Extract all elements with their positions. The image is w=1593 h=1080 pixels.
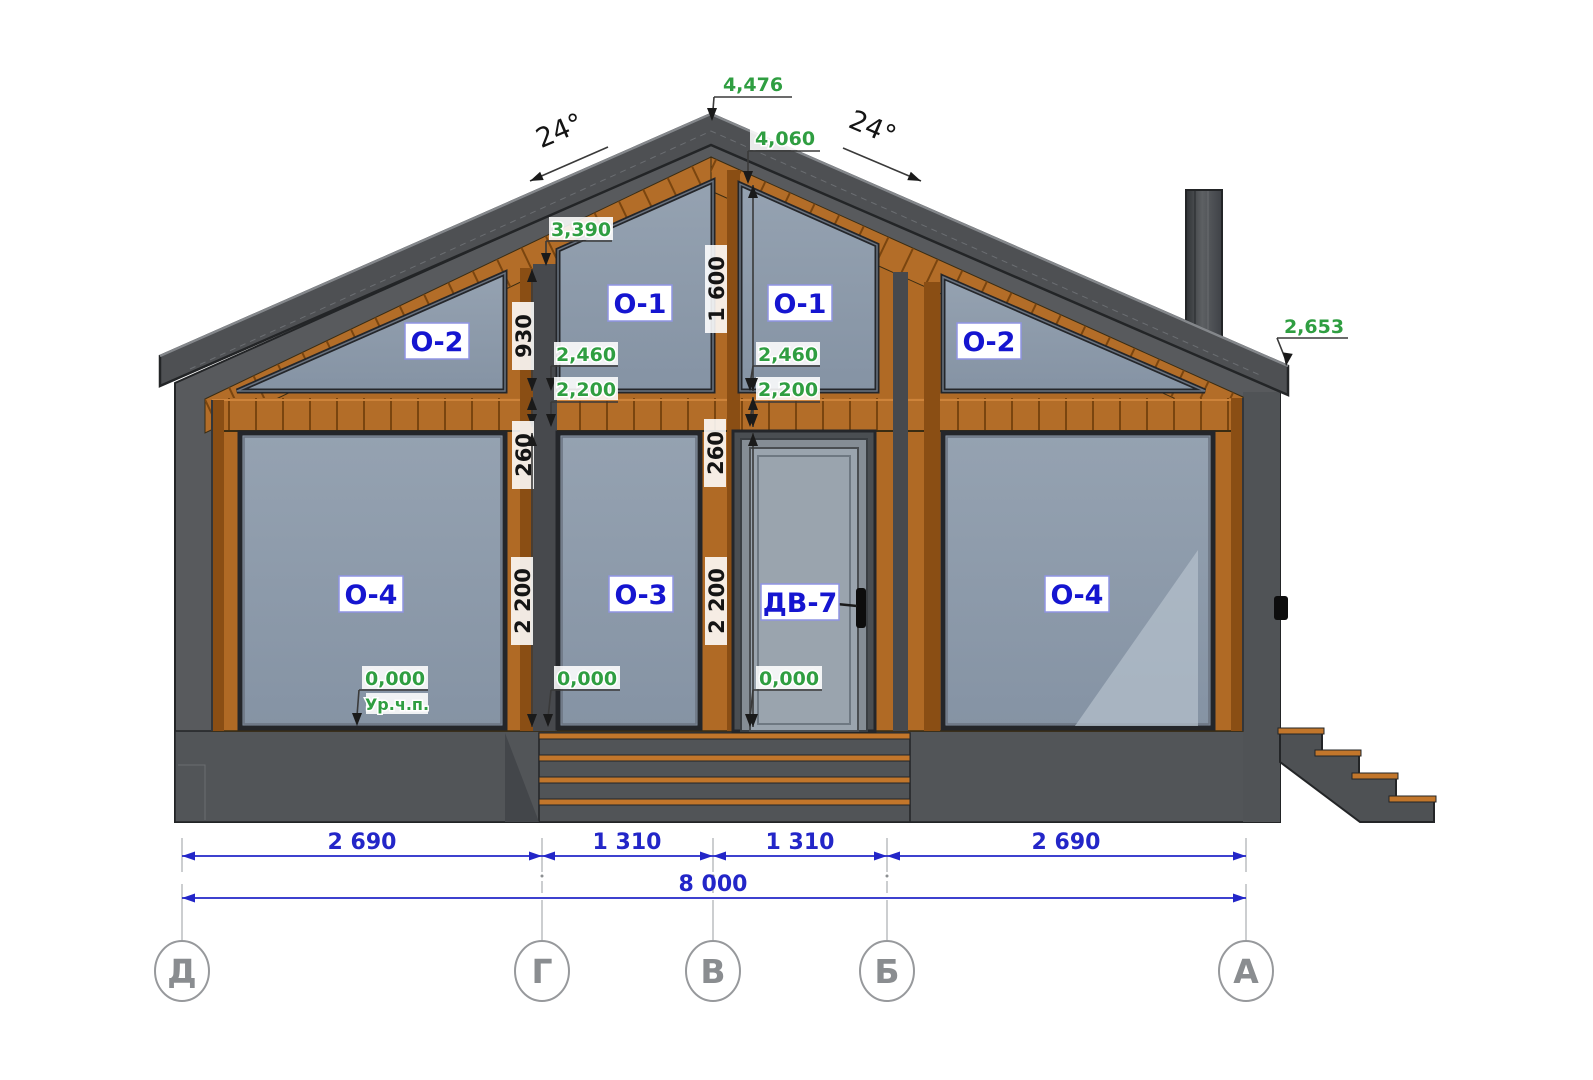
elevation-eave-right: 2,653 [1277,314,1348,367]
entry-steps [505,733,910,822]
floor-level-note: Ур.ч.п. [365,695,429,714]
label-o4-left: О-4 [339,576,403,612]
axis-a-letter: А [1233,952,1259,991]
elevation-left-2460-value: 2,460 [556,344,616,366]
vdim-1600: 1 600 [705,256,729,322]
elevation-right-2200-value: 2,200 [758,379,818,401]
label-o4-right-text: О-4 [1051,580,1104,611]
elevation-zero-cr-value: 0,000 [759,668,819,690]
wall-knob [1274,596,1288,620]
label-o2-right-text: О-2 [963,327,1016,358]
vdim-2200-left: 2 200 [511,568,535,634]
slope-right: 24° [843,105,923,186]
elevation-peak-value: 4,476 [723,74,783,96]
elevation-gable-top-value: 3,390 [551,219,611,241]
axis-bubbles: Д Г В Б А [155,941,1273,1001]
label-o3: О-3 [609,576,673,612]
hdim-total: 8 000 [679,872,748,897]
hdim-seg3: 1 310 [766,830,835,855]
axis-d-letter: Д [167,952,196,991]
hdim-seg1: 2 690 [328,830,397,855]
elevation-drawing: 24° 24° 4,476 4,060 3,390 [0,0,1593,1080]
axis-b-letter: Б [874,952,899,991]
label-o1-left-text: О-1 [614,289,667,320]
label-o3-text: О-3 [615,580,668,611]
label-o4-right: О-4 [1045,576,1109,612]
slope-left-label: 24° [532,108,588,155]
axis-v: В [686,941,740,1001]
horizontal-dimensions: 2 690 1 310 1 310 2 690 8 000 [182,830,1246,941]
axis-a: А [1219,941,1273,1001]
axis-g-letter: Г [531,952,552,991]
slope-right-label: 24° [844,105,900,152]
elevation-peak: 4,476 [707,71,792,121]
elevation-zero-left-value: 0,000 [365,668,425,690]
house [160,114,1436,822]
door-handle [856,588,866,628]
label-o2-left-text: О-2 [411,327,464,358]
label-door-text: ДВ-7 [763,588,838,619]
vdim-2200-right: 2 200 [705,568,729,634]
label-o2-right: О-2 [957,323,1021,359]
vdim-260-right: 260 [704,431,728,475]
elevation-ridge-under-value: 4,060 [755,128,815,150]
elevation-zero-cl-value: 0,000 [557,668,617,690]
side-stair [1278,728,1436,822]
label-o4-left-text: О-4 [345,580,398,611]
label-o1-right: О-1 [768,285,832,321]
elevation-eave-right-value: 2,653 [1284,316,1344,338]
vdim-930: 930 [512,314,536,358]
axis-b: Б [860,941,914,1001]
elevation-left-2200-value: 2,200 [556,379,616,401]
elevation-right-2460-value: 2,460 [758,344,818,366]
axis-v-letter: В [700,952,725,991]
label-o1-left: О-1 [608,285,672,321]
axis-d: Д [155,941,209,1001]
hdim-seg2: 1 310 [593,830,662,855]
hdim-seg4: 2 690 [1032,830,1101,855]
label-o1-right-text: О-1 [774,289,827,320]
label-o2-left: О-2 [405,323,469,359]
facade-drawing-canvas: 24° 24° 4,476 4,060 3,390 [0,0,1593,1080]
axis-g: Г [515,941,569,1001]
